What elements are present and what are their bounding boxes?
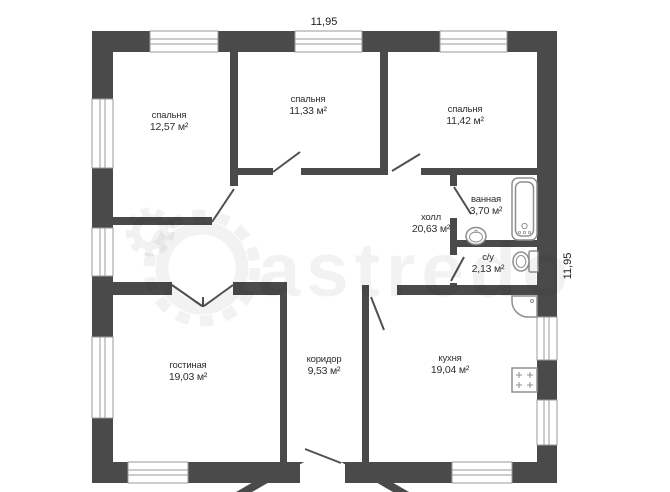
- dimension-top: 11,95: [311, 16, 338, 28]
- window: [295, 31, 362, 52]
- window: [452, 462, 512, 483]
- window: [92, 99, 113, 168]
- wall-segment: [218, 31, 295, 52]
- room-area: 19,04 м²: [431, 364, 469, 376]
- wall-segment: [92, 462, 128, 483]
- wall-segment: [92, 31, 113, 99]
- room-area: 12,57 м²: [150, 121, 188, 133]
- room-name: спальня: [289, 94, 327, 105]
- watermark-text: astredo: [258, 228, 575, 313]
- window: [128, 462, 188, 483]
- room-label-living: гостиная 19,03 м²: [169, 360, 207, 384]
- room-area: 11,33 м²: [289, 105, 327, 117]
- wall-segment: [230, 52, 238, 186]
- stove-icon: [512, 368, 537, 392]
- room-label-kitchen: кухня 19,04 м²: [431, 353, 469, 377]
- room-name: ванная: [470, 194, 503, 205]
- room-label-bedroom-1: спальня 12,57 м²: [150, 110, 188, 134]
- wall-segment: [238, 168, 273, 175]
- room-label-bathroom: ванная 3,70 м²: [470, 194, 503, 218]
- wall-segment: [450, 175, 457, 186]
- door-swing: [273, 152, 300, 172]
- room-label-wc: с/у 2,13 м²: [472, 252, 505, 276]
- room-label-bedroom-2: спальня 11,33 м²: [289, 94, 327, 118]
- door-swing: [454, 187, 471, 214]
- wall-segment: [380, 52, 388, 175]
- window: [537, 400, 557, 445]
- room-label-hall: холл 20,63 м²: [412, 212, 450, 236]
- room-area: 9,53 м²: [307, 365, 342, 377]
- wall-segment: [280, 295, 287, 462]
- watermark: astredo: [129, 211, 575, 321]
- entrance-door-swing: [305, 449, 341, 463]
- window: [537, 317, 557, 360]
- room-name: с/у: [472, 252, 505, 263]
- room-name: коридор: [307, 354, 342, 365]
- room-area: 3,70 м²: [470, 205, 503, 217]
- floor-plan-drawing: 11,95 11,95 astredo: [0, 0, 670, 492]
- wall-segment: [362, 31, 440, 52]
- room-area: 20,63 м²: [412, 223, 450, 235]
- room-area: 19,03 м²: [169, 371, 207, 383]
- door-swing: [392, 154, 420, 171]
- floor-plan: 11,95 11,95 astredo спальня 12,57 м² спа…: [0, 0, 670, 492]
- window: [92, 337, 113, 418]
- window: [92, 228, 113, 276]
- wall-segment: [362, 295, 369, 462]
- room-name: кухня: [431, 353, 469, 364]
- room-name: холл: [412, 212, 450, 223]
- room-name: спальня: [446, 104, 484, 115]
- room-area: 11,42 м²: [446, 115, 484, 127]
- watermark-gear-icon: [129, 211, 255, 321]
- room-name: спальня: [150, 110, 188, 121]
- room-area: 2,13 м²: [472, 263, 505, 275]
- room-label-corridor: коридор 9,53 м²: [307, 354, 342, 378]
- wall-segment: [512, 462, 557, 483]
- room-label-bedroom-3: спальня 11,42 м²: [446, 104, 484, 128]
- wall-segment: [301, 168, 380, 175]
- wall-segment: [421, 168, 537, 175]
- room-name: гостиная: [169, 360, 207, 371]
- window: [150, 31, 218, 52]
- window: [440, 31, 507, 52]
- wall-segment: [537, 360, 557, 400]
